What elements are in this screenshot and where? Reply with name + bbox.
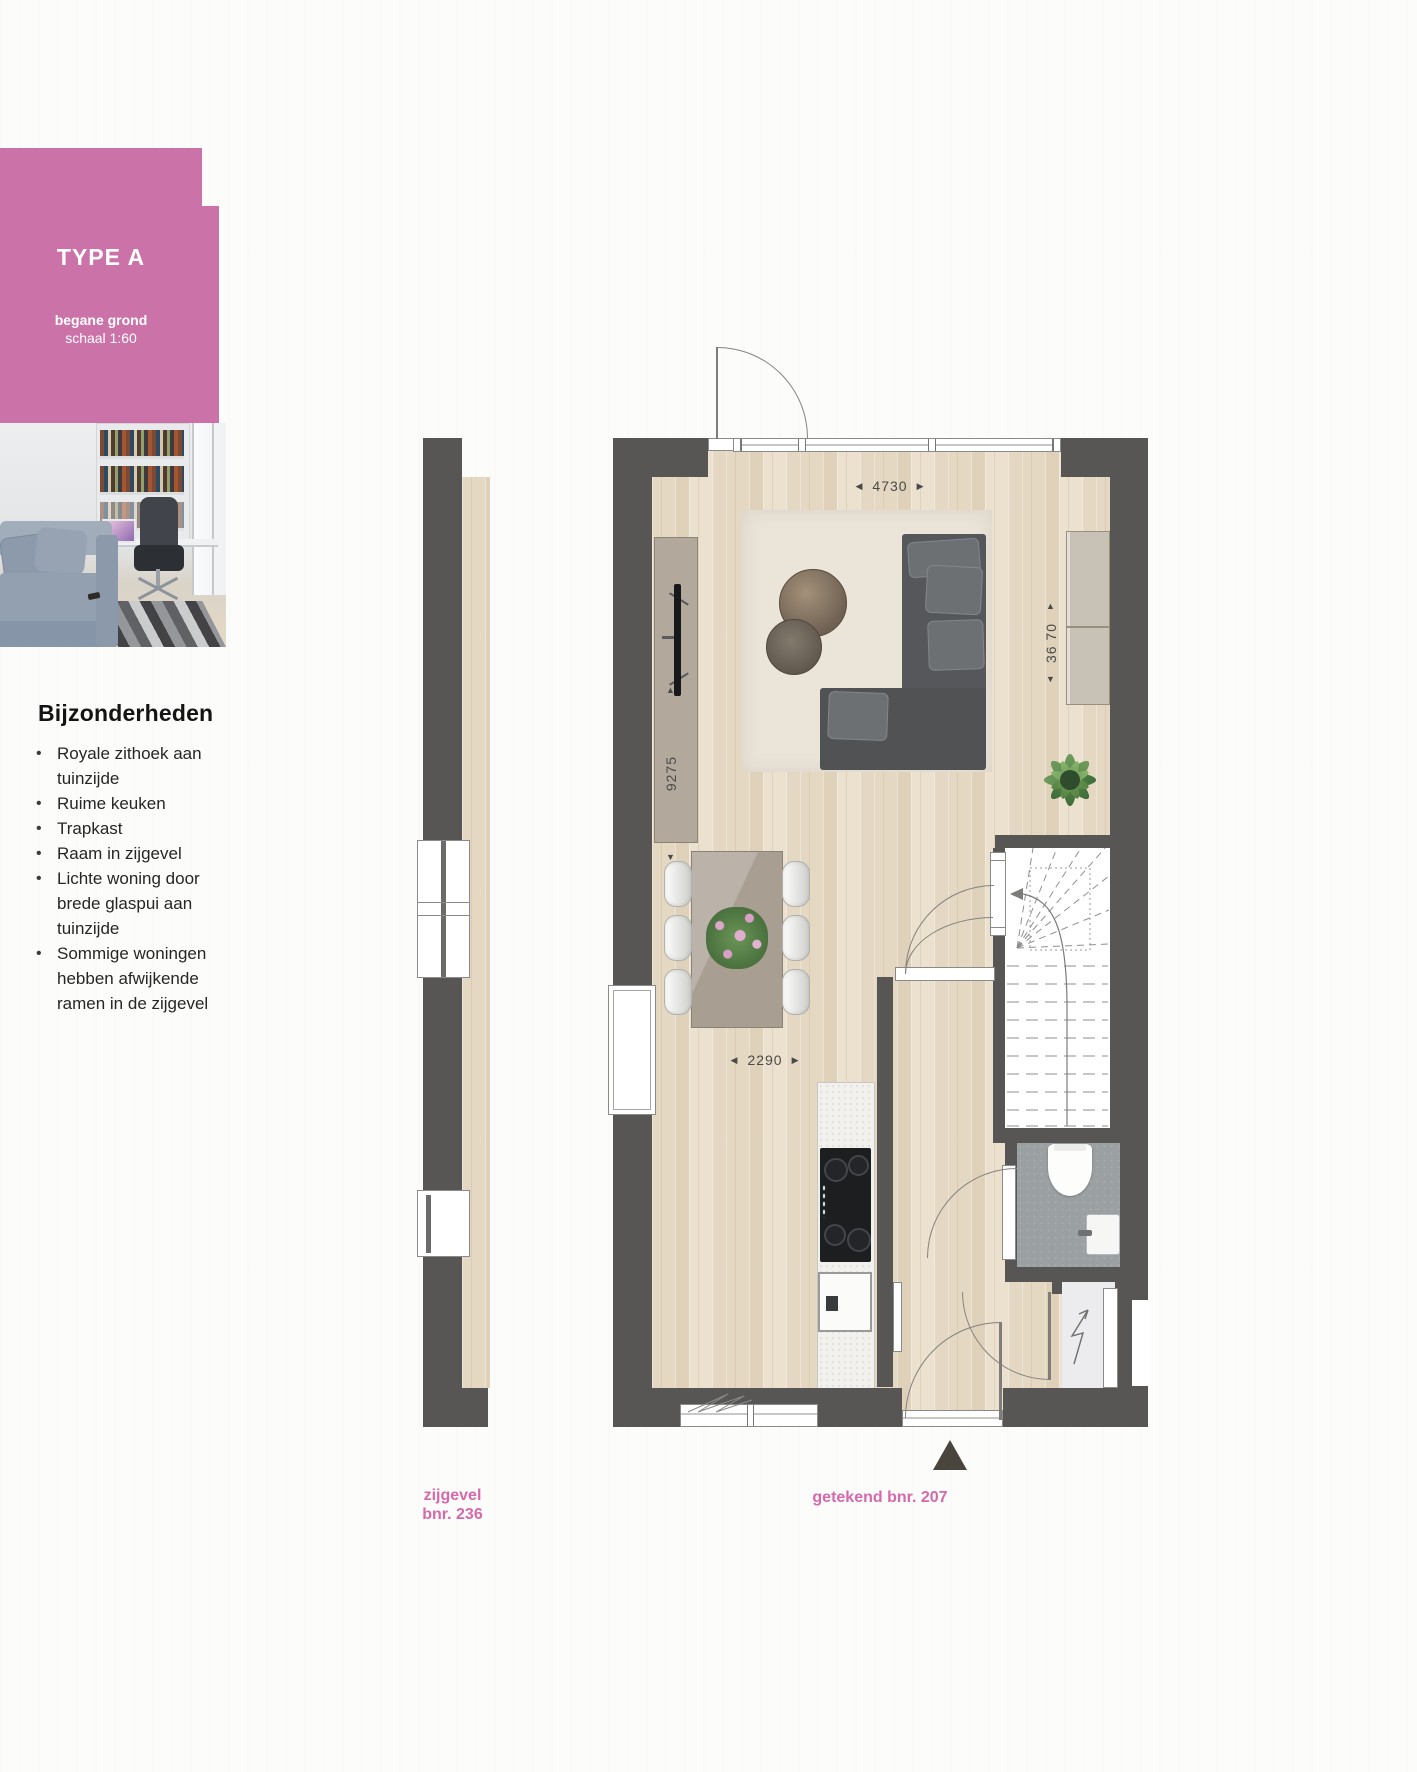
- wall-stair-top: [995, 835, 1112, 848]
- wall-recess: [1132, 1300, 1150, 1386]
- arrow-left-icon: ◀: [856, 482, 864, 491]
- dining-chair: [664, 969, 692, 1015]
- features-list: •Royale zithoek aan tuinzijde •Ruime keu…: [36, 741, 228, 1016]
- dining-chair: [782, 861, 810, 907]
- photo-window: [192, 423, 226, 595]
- dimension-room-depth: ▲ 9275 ▼: [656, 686, 686, 862]
- feature-item: •Raam in zijgevel: [36, 841, 228, 866]
- type-badge: TYPE A begane grond schaal 1:60: [0, 148, 219, 423]
- dimension-kitchen-width: ◀ 2290 ▶: [715, 1051, 815, 1069]
- bullet-icon: •: [36, 866, 44, 941]
- type-title: TYPE A: [0, 244, 202, 271]
- bullet-icon: •: [36, 791, 44, 816]
- wall-top-left: [613, 438, 708, 477]
- wall-bathroom-bottom: [1005, 1267, 1148, 1282]
- arrow-down-icon: ▼: [666, 853, 676, 862]
- dining-chair: [782, 969, 810, 1015]
- drawn-number-label: getekend bnr. 207: [770, 1488, 990, 1507]
- feature-item: •Ruime keuken: [36, 791, 228, 816]
- wall-top-right: [1061, 438, 1110, 477]
- wall-kitchen: [877, 977, 893, 1387]
- feature-item: •Sommige woningen hebben afwijkende rame…: [36, 941, 228, 1016]
- photo-sofa-armrest: [96, 535, 118, 647]
- side-facade-label: zijgevel bnr. 236: [380, 1486, 525, 1524]
- photo-office-chair-seat: [134, 545, 184, 571]
- scale-label: schaal 1:60: [0, 330, 202, 346]
- sofa-pillow: [927, 619, 985, 671]
- sofa-pillow: [925, 565, 983, 616]
- arrow-right-icon: ▶: [917, 482, 925, 491]
- bullet-icon: •: [36, 841, 44, 866]
- entrance-marker-icon: [933, 1440, 967, 1470]
- wall-meter-stub: [1052, 1282, 1062, 1294]
- arrow-right-icon: ▶: [792, 1056, 800, 1065]
- plant: [1022, 732, 1118, 828]
- bullet-icon: •: [36, 741, 44, 791]
- bullet-icon: •: [36, 816, 44, 841]
- meter-cupboard-door: [1103, 1288, 1118, 1388]
- photo-books-row: [100, 466, 184, 495]
- coffee-table-small: [766, 619, 822, 675]
- feature-item: •Trapkast: [36, 816, 228, 841]
- dimension-right-height: ▲ 36 70 ▼: [1036, 602, 1066, 684]
- arrow-up-icon: ▲: [666, 686, 676, 695]
- arrow-left-icon: ◀: [731, 1056, 739, 1065]
- side-facade-window-1: [417, 840, 470, 978]
- arrow-up-icon: ▲: [1046, 602, 1056, 611]
- photo-sofa-pillow: [34, 527, 88, 576]
- wall-left: [613, 438, 652, 1427]
- electricity-icon: [1064, 1306, 1094, 1368]
- staircase-drawing: [1005, 848, 1110, 1128]
- television: [674, 584, 681, 696]
- features-heading: Bijzonderheden: [38, 700, 228, 727]
- staircase: [1005, 848, 1110, 1128]
- side-facade-window-2: [417, 1190, 470, 1257]
- dining-chair: [664, 861, 692, 907]
- feature-item: •Royale zithoek aan tuinzijde: [36, 741, 228, 791]
- vent-window-symbol: [686, 1390, 756, 1414]
- floor-name: begane grond: [0, 312, 202, 328]
- photo-books-row: [100, 430, 184, 459]
- washbasin: [1086, 1214, 1120, 1255]
- table-flowers: [706, 907, 768, 969]
- sofa-pillow: [827, 691, 889, 741]
- dimension-top-width: ◀ 4730 ▶: [840, 477, 940, 495]
- wall-bathroom-top: [1005, 1128, 1120, 1143]
- front-top-door-threshold: [708, 438, 734, 451]
- dining-chair: [664, 915, 692, 961]
- hall-wall-panel: [893, 1282, 902, 1352]
- arrow-down-icon: ▼: [1046, 675, 1056, 684]
- interior-photo: [0, 423, 226, 647]
- side-window: [608, 985, 656, 1115]
- wardrobe-cabinet: [1066, 531, 1110, 705]
- side-facade-wall-foot: [423, 1388, 488, 1427]
- kitchen-sink-unit: [818, 1272, 872, 1332]
- feature-item: •Lichte woning door brede glaspui aan tu…: [36, 866, 228, 941]
- features-panel: Bijzonderheden •Royale zithoek aan tuinz…: [36, 700, 228, 1016]
- bullet-icon: •: [36, 941, 44, 1016]
- garden-door-swing: [717, 347, 808, 438]
- top-window-band: [733, 438, 1061, 452]
- cooktop: [820, 1148, 871, 1262]
- wall-bottom-right: [1003, 1388, 1148, 1427]
- brochure-page: TYPE A begane grond schaal 1:60 Bijzonde…: [0, 0, 1417, 1772]
- dining-chair: [782, 915, 810, 961]
